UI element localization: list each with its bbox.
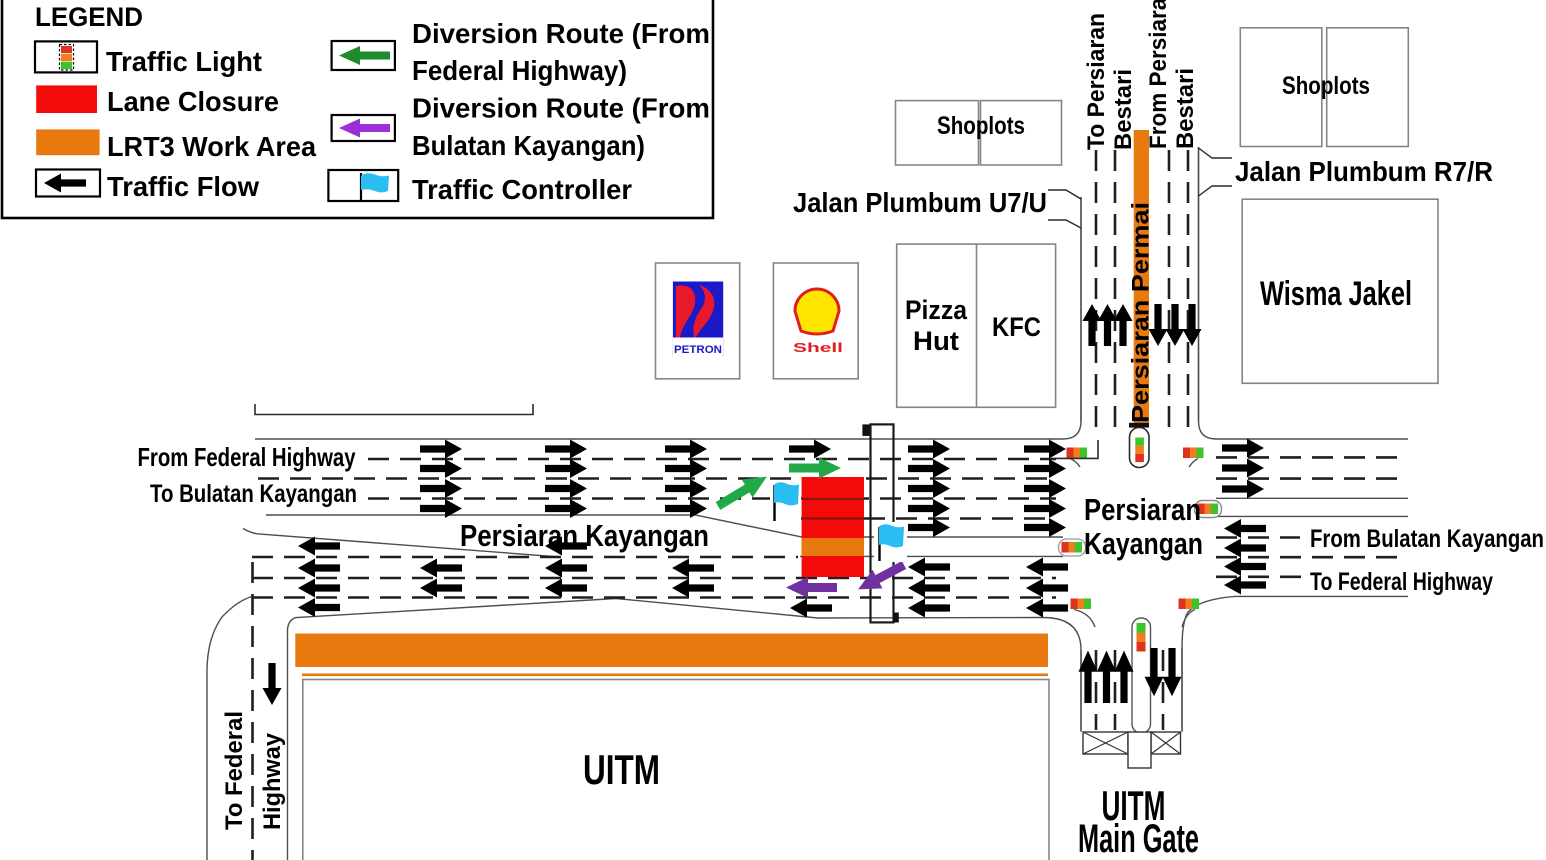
svg-text:UITM: UITM (583, 746, 660, 793)
svg-text:To Federal Highway: To Federal Highway (1310, 568, 1493, 596)
svg-text:Diversion Route (From: Diversion Route (From (412, 93, 710, 124)
svg-text:Bestari: Bestari (1172, 68, 1199, 149)
svg-text:Highway: Highway (259, 732, 286, 830)
svg-text:To Federal: To Federal (221, 711, 248, 830)
svg-text:Bestari: Bestari (1110, 69, 1137, 150)
svg-text:Lane Closure: Lane Closure (107, 86, 279, 117)
svg-text:Hut: Hut (913, 326, 959, 356)
svg-text:LEGEND: LEGEND (35, 2, 143, 32)
svg-text:Persiaran Kayangan: Persiaran Kayangan (460, 518, 709, 553)
svg-text:KFC: KFC (992, 312, 1041, 342)
svg-text:Shoplots: Shoplots (937, 112, 1025, 140)
svg-text:To Bulatan Kayangan: To Bulatan Kayangan (150, 480, 357, 508)
svg-text:Jalan Plumbum U7/U: Jalan Plumbum U7/U (793, 187, 1047, 218)
svg-text:Wisma Jakel: Wisma Jakel (1260, 275, 1412, 313)
svg-text:From Bulatan Kayangan: From Bulatan Kayangan (1310, 525, 1544, 553)
svg-text:Traffic Flow: Traffic Flow (107, 171, 259, 202)
svg-text:To Persiaran: To Persiaran (1083, 13, 1110, 150)
svg-text:Traffic Controller: Traffic Controller (412, 174, 632, 205)
svg-text:Kayangan: Kayangan (1084, 526, 1203, 561)
svg-text:Jalan Plumbum R7/R: Jalan Plumbum R7/R (1235, 156, 1493, 187)
svg-text:Shell: Shell (793, 340, 843, 355)
svg-text:Persiaran Permai: Persiaran Permai (1128, 202, 1155, 423)
svg-text:Shoplots: Shoplots (1282, 72, 1370, 100)
svg-text:LRT3 Work Area: LRT3 Work Area (107, 131, 316, 162)
svg-text:Diversion Route (From: Diversion Route (From (412, 18, 710, 49)
svg-text:From Federal Highway: From Federal Highway (138, 442, 356, 472)
svg-text:Bulatan Kayangan): Bulatan Kayangan) (412, 130, 645, 161)
svg-text:Traffic Light: Traffic Light (106, 46, 262, 77)
svg-text:Main Gate: Main Gate (1078, 817, 1199, 860)
svg-text:Persiaran: Persiaran (1084, 492, 1201, 527)
svg-text:Federal Highway): Federal Highway) (412, 55, 627, 86)
svg-text:From Persiaran: From Persiaran (1145, 0, 1172, 149)
svg-text:Pizza: Pizza (905, 295, 968, 325)
svg-text:PETRON: PETRON (674, 344, 722, 356)
